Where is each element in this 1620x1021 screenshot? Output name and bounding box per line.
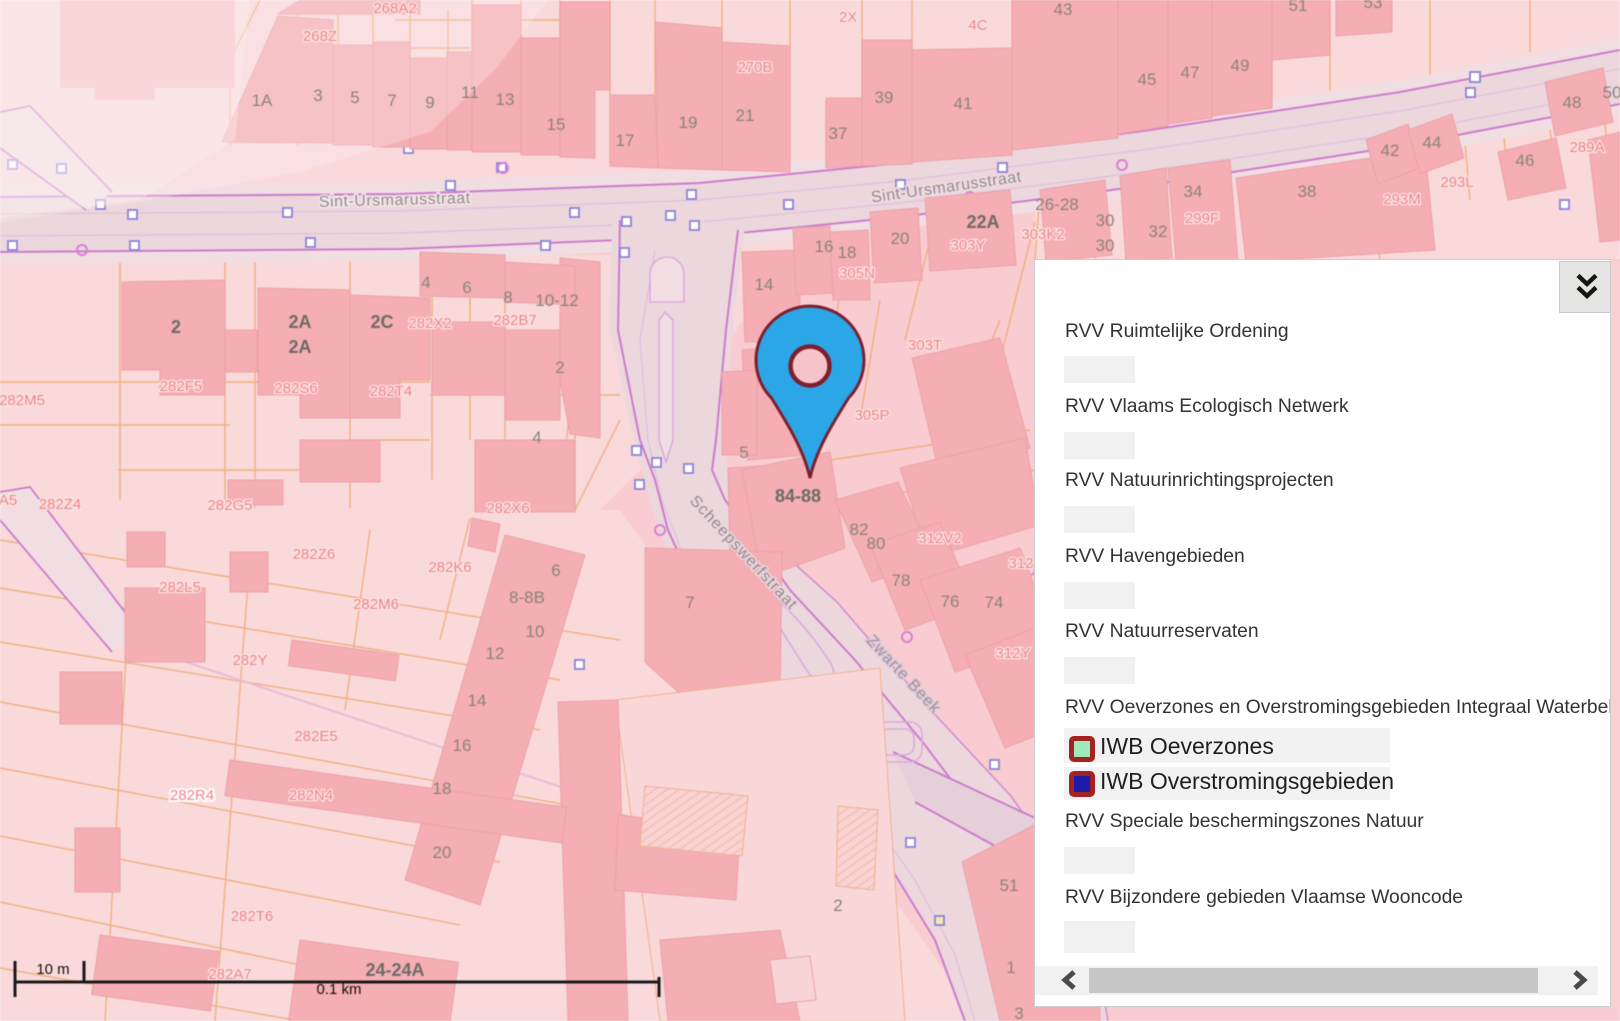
svg-text:30: 30 <box>1096 236 1115 255</box>
svg-text:293M: 293M <box>1383 191 1421 208</box>
svg-text:282X6: 282X6 <box>486 500 529 517</box>
svg-text:2C: 2C <box>370 312 393 332</box>
svg-text:7: 7 <box>685 593 694 612</box>
svg-text:282G5: 282G5 <box>207 497 252 514</box>
svg-text:1: 1 <box>1006 958 1015 977</box>
svg-text:21: 21 <box>736 106 755 125</box>
svg-text:268A2: 268A2 <box>373 0 416 17</box>
svg-text:9: 9 <box>425 93 434 112</box>
svg-text:19: 19 <box>679 113 698 132</box>
svg-text:4: 4 <box>532 428 541 447</box>
svg-text:14: 14 <box>468 691 487 710</box>
svg-text:24-24A: 24-24A <box>365 960 424 980</box>
svg-text:303K2: 303K2 <box>1021 226 1064 243</box>
svg-text:10 m: 10 m <box>36 961 69 978</box>
svg-text:12: 12 <box>486 644 505 663</box>
svg-text:76: 76 <box>941 592 960 611</box>
svg-text:78: 78 <box>892 571 911 590</box>
svg-text:37: 37 <box>829 124 848 143</box>
svg-text:74: 74 <box>985 593 1004 612</box>
svg-text:80: 80 <box>867 534 886 553</box>
svg-text:11: 11 <box>461 83 479 102</box>
svg-text:6: 6 <box>462 278 471 297</box>
svg-text:20: 20 <box>433 843 452 862</box>
svg-text:303Y: 303Y <box>950 237 985 254</box>
svg-text:282X2: 282X2 <box>408 315 451 332</box>
svg-text:50: 50 <box>1603 83 1620 102</box>
svg-text:43: 43 <box>1054 0 1073 19</box>
svg-text:42: 42 <box>1381 141 1400 160</box>
svg-text:6: 6 <box>551 561 560 580</box>
svg-text:2: 2 <box>171 317 181 337</box>
svg-text:282F5: 282F5 <box>160 378 203 395</box>
svg-text:282N4: 282N4 <box>289 787 333 804</box>
svg-text:282Z4: 282Z4 <box>39 496 82 513</box>
svg-text:2A: 2A <box>288 337 311 357</box>
svg-text:10-12: 10-12 <box>535 291 578 310</box>
svg-text:18: 18 <box>433 779 452 798</box>
svg-text:A5: A5 <box>0 492 17 509</box>
svg-text:312Y: 312Y <box>995 645 1030 662</box>
svg-text:8-8B: 8-8B <box>509 588 545 607</box>
svg-text:17: 17 <box>616 131 635 150</box>
svg-text:22A: 22A <box>966 212 999 232</box>
svg-text:282A7: 282A7 <box>208 966 251 983</box>
svg-text:282M6: 282M6 <box>353 596 399 613</box>
svg-text:305N: 305N <box>839 265 875 282</box>
svg-text:2: 2 <box>833 896 842 915</box>
svg-text:44: 44 <box>1423 133 1442 152</box>
svg-text:32: 32 <box>1149 222 1168 241</box>
svg-text:7: 7 <box>387 91 396 110</box>
svg-text:270B: 270B <box>737 59 772 76</box>
svg-text:312: 312 <box>1008 555 1033 572</box>
svg-text:10: 10 <box>526 622 545 641</box>
svg-text:16: 16 <box>815 237 834 256</box>
svg-text:51: 51 <box>1289 0 1308 15</box>
svg-text:14: 14 <box>755 275 774 294</box>
svg-text:4C: 4C <box>968 17 987 34</box>
svg-text:282Z6: 282Z6 <box>293 546 336 563</box>
svg-text:13: 13 <box>496 90 515 109</box>
svg-text:34: 34 <box>1184 182 1203 201</box>
svg-text:282R4: 282R4 <box>170 787 214 804</box>
svg-text:268Z: 268Z <box>303 28 337 45</box>
svg-text:289A: 289A <box>1569 139 1604 156</box>
svg-text:303T: 303T <box>908 337 942 354</box>
svg-text:49: 49 <box>1231 56 1250 75</box>
svg-text:1A: 1A <box>252 91 273 110</box>
svg-text:282E5: 282E5 <box>294 728 337 745</box>
svg-text:282Y: 282Y <box>232 652 267 669</box>
svg-text:41: 41 <box>954 94 973 113</box>
svg-text:53: 53 <box>1364 0 1383 12</box>
svg-text:16: 16 <box>453 736 472 755</box>
svg-text:282B7: 282B7 <box>493 312 536 329</box>
svg-text:2X: 2X <box>839 9 857 26</box>
svg-text:45: 45 <box>1138 70 1157 89</box>
svg-text:3: 3 <box>313 86 322 105</box>
svg-text:18: 18 <box>838 243 857 262</box>
svg-text:46: 46 <box>1516 151 1535 170</box>
svg-text:282L5: 282L5 <box>159 579 201 596</box>
svg-text:84-88: 84-88 <box>775 486 821 506</box>
svg-text:39: 39 <box>875 88 894 107</box>
svg-text:282S6: 282S6 <box>274 380 317 397</box>
svg-text:51: 51 <box>1000 876 1019 895</box>
svg-text:3: 3 <box>1014 1004 1023 1021</box>
svg-text:282K6: 282K6 <box>428 559 471 576</box>
svg-text:293L: 293L <box>1440 174 1473 191</box>
svg-text:30: 30 <box>1096 211 1115 230</box>
svg-text:4: 4 <box>421 273 430 292</box>
svg-text:48: 48 <box>1563 93 1582 112</box>
svg-text:282T4: 282T4 <box>370 383 413 400</box>
svg-text:2: 2 <box>555 358 564 377</box>
svg-text:5: 5 <box>350 88 359 107</box>
svg-text:312V2: 312V2 <box>918 530 961 547</box>
svg-text:47: 47 <box>1181 63 1200 82</box>
svg-text:38: 38 <box>1298 182 1317 201</box>
svg-text:282M5: 282M5 <box>0 392 45 409</box>
svg-text:2A: 2A <box>288 312 311 332</box>
svg-text:5: 5 <box>739 443 748 462</box>
svg-text:299F: 299F <box>1185 210 1219 227</box>
svg-text:15: 15 <box>547 115 566 134</box>
svg-text:20: 20 <box>891 229 910 248</box>
svg-text:0.1 km: 0.1 km <box>316 981 361 998</box>
svg-text:26-28: 26-28 <box>1035 195 1078 214</box>
svg-text:282T6: 282T6 <box>231 908 274 925</box>
svg-text:8: 8 <box>503 288 512 307</box>
svg-text:305P: 305P <box>854 407 889 424</box>
